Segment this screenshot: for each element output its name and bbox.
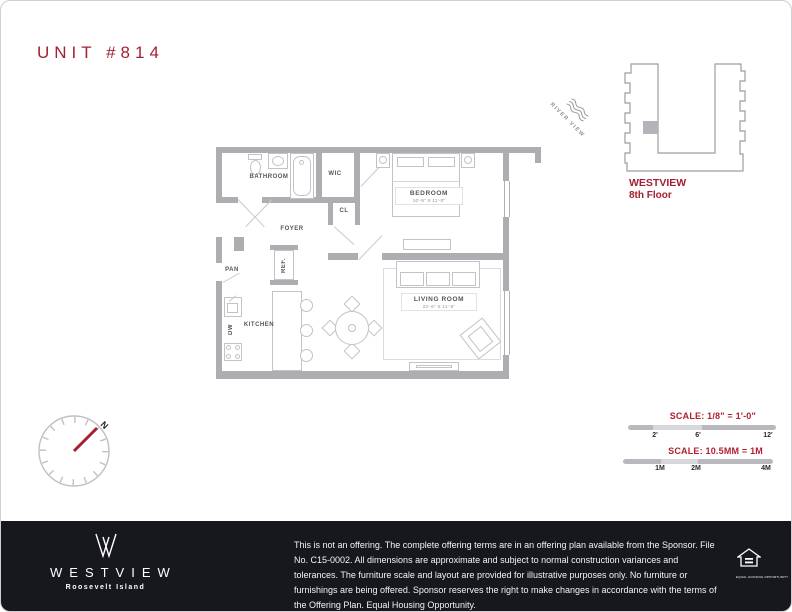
- room-label-closet: CL: [331, 208, 357, 214]
- scale-bar-segment: [628, 425, 653, 430]
- burner: [226, 354, 231, 359]
- scale-bar-segment: [661, 459, 698, 464]
- footer: WESTVIEW Roosevelt Island This is not an…: [1, 521, 792, 612]
- page-title: UNIT #814: [37, 43, 164, 63]
- room-label-wic: WIC: [322, 171, 348, 177]
- bathtub-drain: [299, 160, 304, 165]
- brand-location: Roosevelt Island: [43, 584, 168, 591]
- wall-segment: [355, 203, 360, 225]
- metric-tick: 1M: [651, 465, 669, 472]
- burner: [226, 345, 231, 350]
- wall-segment: [216, 237, 222, 263]
- wall-segment: [222, 197, 238, 203]
- pillow: [428, 157, 455, 167]
- key-plan-building-name: WESTVIEW: [629, 177, 686, 190]
- sink-basin: [272, 156, 284, 166]
- imperial-tick: 2': [647, 432, 663, 439]
- blanket-line: [393, 181, 459, 182]
- wall-segment: [270, 280, 298, 285]
- wall-segment: [234, 237, 244, 251]
- key-plan-caption: WESTVIEW 8th Floor: [629, 177, 686, 203]
- toilet: [250, 160, 261, 175]
- kitchen-sink-basin: [227, 303, 238, 313]
- room-label-pantry: PAN: [221, 267, 243, 273]
- room-label-living-room: LIVING ROOM: [404, 296, 474, 303]
- compass: N: [34, 407, 118, 493]
- window: [504, 181, 510, 217]
- metric-tick: 4M: [757, 465, 775, 472]
- wall-segment: [503, 153, 509, 181]
- scale-bar-segment: [702, 425, 776, 430]
- room-dims-living-room: 22'-6" X 11'-6": [404, 304, 474, 309]
- room-label-refrigerator: REF.: [278, 252, 290, 278]
- dining-chair: [344, 296, 361, 313]
- kitchen-island: [272, 291, 302, 371]
- equal-housing-label: EQUAL HOUSING OPPORTUNITY: [736, 575, 762, 579]
- scale-bar-segment: [653, 425, 702, 430]
- westview-monogram-icon: [88, 532, 124, 558]
- wall-segment: [216, 281, 222, 371]
- door-swing: [334, 226, 355, 245]
- room-label-bedroom: BEDROOM: [398, 190, 460, 197]
- dresser: [403, 239, 451, 250]
- lamp: [379, 156, 387, 164]
- equal-housing-logo: EQUAL HOUSING OPPORTUNITY: [736, 548, 762, 579]
- wall-segment: [382, 253, 509, 260]
- dining-chair: [344, 343, 361, 360]
- lamp: [464, 156, 472, 164]
- wall-segment: [328, 253, 358, 260]
- room-label-foyer: FOYER: [274, 226, 310, 232]
- room-tag-living-room: LIVING ROOM 22'-6" X 11'-6": [401, 293, 477, 311]
- building-key-plan: [617, 59, 749, 177]
- bar-stool: [300, 324, 313, 337]
- pillow: [397, 157, 424, 167]
- metric-tick: 2M: [687, 465, 705, 472]
- room-label-dishwasher: DW: [225, 320, 237, 340]
- bar-stool: [300, 299, 313, 312]
- room-tag-bedroom: BEDROOM 10'-9" X 11'-0": [395, 187, 463, 205]
- door-swing: [223, 272, 241, 283]
- window: [504, 291, 510, 355]
- door-swing: [245, 199, 272, 227]
- floor-plan: BATHROOM WIC CL FOYER PAN KITCHEN DW REF…: [216, 141, 546, 379]
- imperial-tick: 12': [759, 432, 777, 439]
- unit-location-marker: [643, 121, 658, 134]
- river-view-annotation: RIVER VIEW: [537, 76, 611, 150]
- burner: [235, 354, 240, 359]
- brand-name: WESTVIEW: [43, 565, 168, 580]
- floorplan-sheet: UNIT #814: [0, 0, 792, 612]
- imperial-tick: 6': [690, 432, 706, 439]
- sofa-cushion: [426, 272, 450, 286]
- room-dims-bedroom: 10'-9" X 11'-0": [398, 198, 460, 203]
- bar-stool: [300, 349, 313, 362]
- legal-disclaimer: This is not an offering. The complete of…: [294, 538, 722, 612]
- equal-housing-house-icon: [737, 548, 761, 570]
- door-swing: [238, 199, 265, 227]
- door-swing: [359, 235, 383, 259]
- wall-segment: [535, 153, 541, 163]
- imperial-scale-bar: [628, 425, 776, 430]
- burner: [235, 345, 240, 350]
- sofa-cushion: [400, 272, 424, 286]
- sofa-cushion: [452, 272, 476, 286]
- wall-segment: [216, 147, 222, 203]
- key-plan-floor: 8th Floor: [629, 190, 686, 203]
- scale-bar-segment: [698, 459, 773, 464]
- metric-scale-bar: [623, 459, 773, 464]
- metric-scale-title: SCALE: 10.5MM = 1M: [581, 446, 763, 456]
- tv-console-detail: [416, 365, 452, 368]
- imperial-scale-title: SCALE: 1/8" = 1'-0": [581, 411, 756, 421]
- brand-logo: WESTVIEW Roosevelt Island: [43, 532, 168, 591]
- scale-bar-segment: [623, 459, 661, 464]
- building-outline: [625, 64, 745, 171]
- room-label-bathroom: BATHROOM: [246, 174, 292, 180]
- wall-segment: [354, 153, 360, 197]
- room-label-kitchen: KITCHEN: [242, 322, 276, 328]
- wall-segment: [216, 371, 509, 379]
- dining-table-hub: [348, 324, 356, 332]
- wall-segment: [328, 203, 333, 225]
